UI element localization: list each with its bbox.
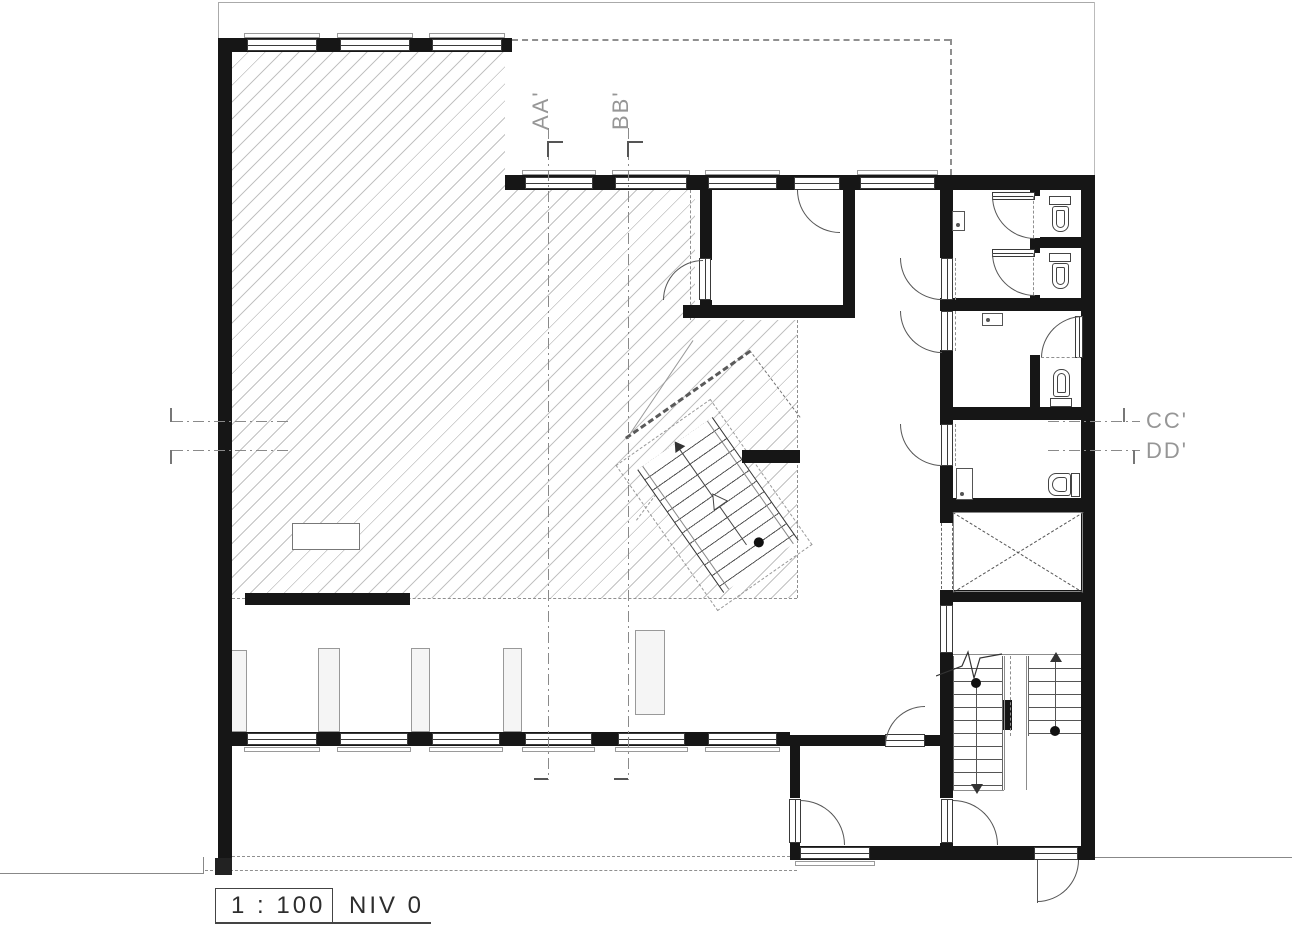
stair-down-arrow [971, 784, 983, 794]
toilet-tank [1049, 253, 1071, 262]
section-bracket [548, 141, 563, 143]
wall-right [1081, 175, 1095, 860]
window [525, 177, 593, 189]
toilet-tank [1049, 196, 1071, 205]
wall-room-top-b [925, 735, 940, 746]
wall-vestibule-right [843, 190, 855, 318]
window-sill [337, 747, 411, 752]
stair-mid-line-2 [1026, 656, 1027, 790]
door-leaf [941, 258, 953, 300]
partition-fin-1 [230, 650, 247, 732]
window [800, 847, 870, 859]
sink [956, 468, 973, 500]
wall-corridor-f [940, 843, 953, 848]
door-arc [992, 253, 1035, 296]
wall-stub-hall-bottom [245, 593, 410, 605]
door-arc [885, 706, 925, 746]
section-bracket [534, 778, 548, 780]
window [525, 733, 592, 745]
stair-start-dot [752, 535, 766, 549]
window-sill [615, 747, 688, 752]
site-line-top [218, 2, 1095, 3]
window-sill [612, 170, 690, 175]
window [340, 733, 408, 745]
stair-center-line-up [1055, 660, 1056, 730]
section-label-dd: DD' [1146, 438, 1188, 464]
door-opening-dashed [955, 424, 956, 466]
ground-line-connector [203, 857, 204, 874]
window [432, 39, 502, 51]
window-sill [705, 747, 780, 752]
section-bracket [614, 778, 628, 780]
partition-fin-2 [318, 648, 340, 732]
sink [952, 211, 965, 231]
section-line-dd-right [1048, 450, 1140, 451]
window-sill [522, 747, 595, 752]
section-line-dd-left [172, 450, 292, 451]
stair-dot-up [1050, 726, 1060, 736]
site-line-left [218, 2, 219, 38]
door-arc [800, 800, 845, 845]
upper-outline-dashed-top [512, 39, 950, 41]
section-line-aa [548, 128, 549, 780]
toilet-bowl [1053, 369, 1070, 397]
stair-mid-dashed [1010, 656, 1011, 736]
partition-fin-5 [635, 630, 665, 715]
window [432, 733, 500, 745]
wall-shaft-top [940, 498, 1095, 512]
section-bracket [170, 408, 172, 422]
wall-stall-divider [1040, 237, 1083, 248]
section-label-aa: AA' [528, 90, 554, 130]
door-leaf [941, 311, 953, 351]
stair-break-line [936, 646, 1006, 686]
wall-room2-bottom [940, 407, 1083, 420]
door-leaf [794, 177, 840, 190]
door-arc [1037, 860, 1079, 902]
door-arc [992, 196, 1035, 239]
wall-stub-mezzanine [742, 450, 800, 463]
window [340, 39, 410, 51]
window-sill [705, 170, 780, 175]
site-line-right [1094, 2, 1095, 175]
section-label-cc: CC' [1146, 408, 1188, 434]
door-arc [797, 190, 840, 233]
door-arc [900, 258, 942, 300]
section-bracket [628, 141, 643, 143]
window [247, 39, 317, 51]
door-opening-dashed [1033, 253, 1034, 295]
stair-center-line-down [976, 684, 977, 786]
sink [982, 313, 1003, 326]
title-underline [215, 922, 431, 924]
door-arc [1041, 316, 1083, 358]
door-arc [900, 424, 942, 466]
section-label-bb: BB' [608, 90, 634, 130]
section-line-bb [628, 128, 629, 780]
ground-line-left [0, 873, 203, 874]
toilet-bowl [1048, 473, 1071, 496]
door-opening-dashed [1041, 357, 1080, 358]
wall-corridor-c [940, 466, 953, 498]
window-sill [429, 747, 503, 752]
terrace-dashed-2 [205, 870, 797, 871]
wall-vestibule-bottom [683, 305, 855, 318]
door-leaf [1034, 847, 1078, 860]
toilet-tank [1050, 398, 1072, 407]
wall-room-top-a [790, 735, 885, 746]
window-sill [429, 33, 505, 38]
window-sill [244, 33, 320, 38]
toilet-tank [1071, 473, 1080, 497]
window [247, 733, 317, 745]
terrace-dashed-1 [232, 856, 790, 857]
door-arc [900, 311, 942, 353]
window [708, 177, 777, 189]
door-opening-dashed [1033, 196, 1034, 238]
wall-cap-bottom-left [215, 858, 232, 875]
toilet-bowl [1052, 206, 1069, 232]
section-bracket [1123, 408, 1125, 422]
wall-corridor-d [940, 512, 953, 523]
window-sill [522, 170, 596, 175]
window-sill [795, 861, 875, 866]
window [615, 177, 687, 189]
section-bracket [627, 141, 629, 157]
toilet-bowl [1052, 263, 1069, 289]
window [860, 177, 935, 189]
floor-plan-canvas: AA' BB' CC' DD' 1 : 100 NIV 0 [0, 0, 1292, 937]
wall-vestibule-left-a [700, 190, 712, 260]
ground-line-right [1095, 857, 1292, 858]
window [708, 733, 777, 745]
window-sill [337, 33, 413, 38]
elevator-door-opening [941, 523, 953, 589]
section-line-cc-right [1048, 421, 1140, 422]
hatch-boundary-dashed-1 [690, 190, 691, 320]
stair-up-arrow-2 [1050, 652, 1062, 662]
section-bracket [547, 141, 549, 157]
wall-subwc-v [1030, 355, 1040, 407]
wall-left [218, 38, 232, 875]
door-leaf [941, 799, 953, 843]
hall-table [292, 523, 360, 550]
partition-fin-3 [411, 648, 430, 732]
partition-fin-4 [503, 648, 522, 732]
wall-washroom-bottom [940, 298, 1083, 311]
level-label: NIV 0 [349, 892, 424, 920]
door-opening-dashed [955, 258, 956, 300]
door-leaf [941, 424, 953, 466]
section-bracket [1133, 450, 1135, 464]
section-line-cc-left [172, 421, 292, 422]
door-arc [953, 800, 998, 845]
window-sill [857, 170, 938, 175]
upper-outline-dashed-right [950, 39, 952, 175]
window-sill [244, 747, 320, 752]
door-opening-dashed [955, 311, 956, 351]
scale-label: 1 : 100 [231, 892, 325, 920]
section-bracket [170, 450, 172, 464]
wall-x790-b [790, 843, 800, 860]
